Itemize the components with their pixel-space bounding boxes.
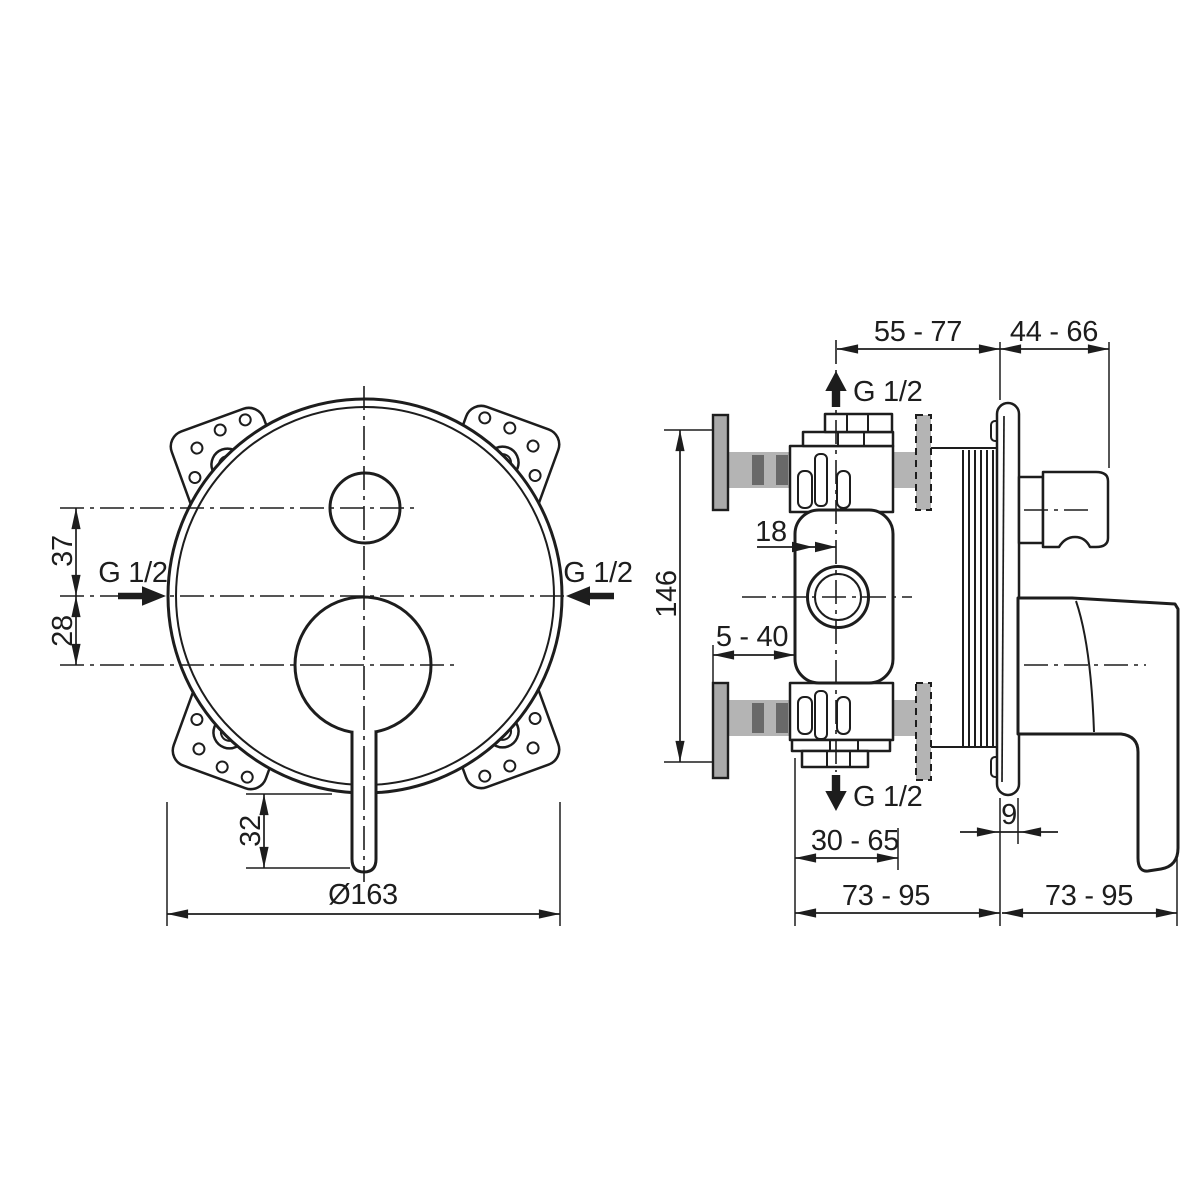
- dim-label-9: 9: [1001, 799, 1017, 831]
- inlet-label-right: G 1/2: [563, 557, 632, 589]
- escutcheon-plate: [997, 403, 1019, 795]
- wall-flange-bottom-left: [713, 683, 728, 778]
- dim-label-5-40: 5 - 40: [716, 621, 788, 653]
- dim-label-28: 28: [47, 615, 79, 647]
- dim-label-18: 18: [755, 516, 787, 548]
- wall-flange-top-left: [713, 415, 728, 510]
- dim-label-30-65: 30 - 65: [811, 825, 899, 857]
- mixer-valve-dimension-drawing: 37 28 G 1/2 G 1/2 32 Ø163: [0, 0, 1200, 1200]
- technical-drawing-page: 37 28 G 1/2 G 1/2 32 Ø163: [0, 0, 1200, 1200]
- dim-label-d163: Ø163: [328, 879, 398, 911]
- dim-label-73-95-right: 73 - 95: [1045, 880, 1133, 912]
- dim-label-44-66: 44 - 66: [1010, 316, 1098, 348]
- dim-label-146: 146: [651, 570, 683, 618]
- inlet-label-left: G 1/2: [98, 557, 167, 589]
- outlet-label-bottom: G 1/2: [853, 781, 922, 813]
- dim-label-55-77: 55 - 77: [874, 316, 962, 348]
- wall-flange-bottom-right: [916, 683, 931, 780]
- wall-flange-top-right: [916, 415, 931, 510]
- dim-label-32: 32: [235, 815, 267, 847]
- dim-label-73-95-left: 73 - 95: [842, 880, 930, 912]
- dim-label-37: 37: [47, 535, 79, 567]
- outlet-label-top: G 1/2: [853, 376, 922, 408]
